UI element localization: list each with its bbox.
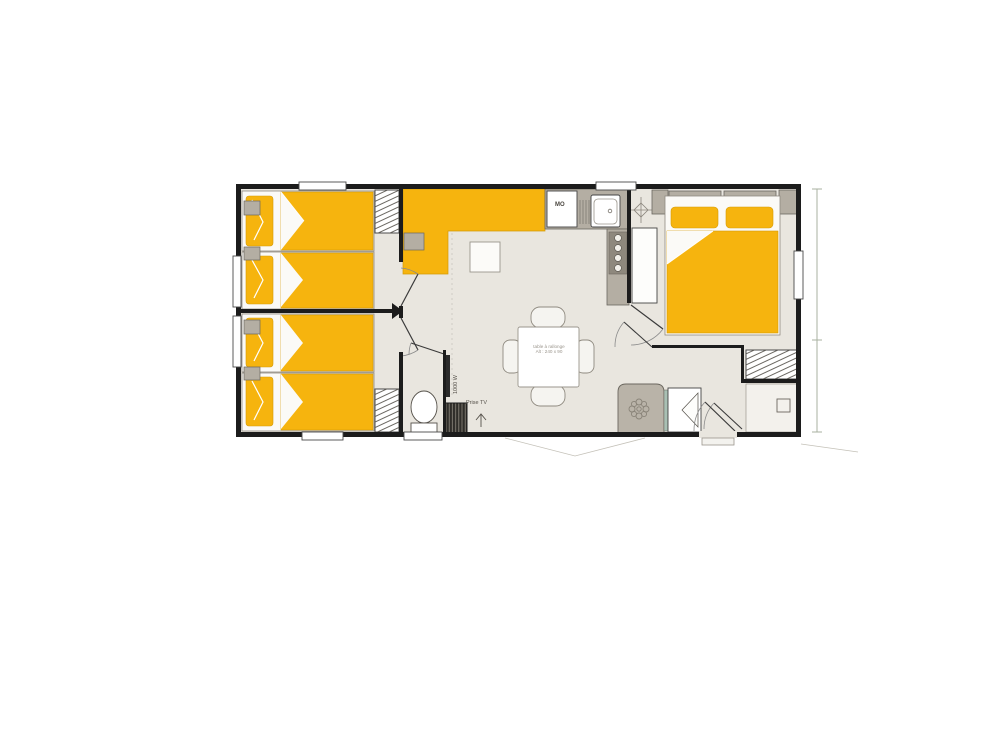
nightstand [244,367,260,380]
dimension-line [812,189,822,432]
wc [411,391,437,433]
microwave-label: MO [555,202,565,209]
entry-threshold [702,438,734,445]
chair [531,307,565,328]
interior-wall [741,345,744,383]
interior-wall [399,352,403,432]
interior-wall [241,309,399,313]
wardrobe [375,389,399,432]
tv-shelf [445,403,467,433]
shower-room [746,384,798,432]
dimension-line [801,444,858,452]
coffee-table [470,242,500,272]
entry-opening [699,431,737,438]
interior-wall [652,345,743,348]
bathroom [618,384,701,433]
dining-table [518,327,579,387]
dining-table-label: table à rallonge Alt : 240 x 90 [518,344,580,355]
tv-socket-label: Prise TV [466,400,487,406]
side-table [404,233,424,250]
pillow [726,207,773,228]
burner-icon [615,265,622,272]
nightstand [244,247,260,260]
window [233,256,241,307]
floor-plan [0,0,1000,750]
wardrobe [746,350,798,379]
burner-icon [615,235,622,242]
window [302,432,343,440]
interior-wall [399,189,403,262]
single-bed [242,191,374,251]
single-bed [242,252,374,309]
burner-icon [615,245,622,252]
burner-icon [615,255,622,262]
outer-wall-left [236,184,241,437]
single-bed [242,314,374,372]
dining-table-label-line2: Alt : 240 x 90 [518,349,580,354]
nightstand [244,320,260,334]
window [794,251,803,299]
terrace-mark [505,438,645,456]
floor-plan-page: MO 1000 W Prise TV table à rallonge Alt … [0,0,1000,750]
window [404,432,442,440]
radiator-power-label: 1000 W [453,375,459,394]
toilet-tank [411,423,437,433]
interior-wall [443,350,446,432]
window [299,182,346,190]
window [233,316,241,367]
toilet [411,391,437,423]
nightstand [244,201,260,215]
dresser [632,228,657,303]
microwave-shelf [547,191,577,227]
interior-wall [627,189,631,303]
chair [531,385,565,406]
water-heater [618,384,664,433]
outer-wall-right [796,184,801,437]
interior-wall [741,379,801,383]
towel-rail [664,390,668,431]
sink [591,195,620,227]
pillow [671,207,718,228]
window [596,182,636,190]
washbasin [668,388,701,432]
stove [609,232,627,274]
double-bed [665,196,780,335]
wardrobe [375,190,399,233]
single-bed [242,373,374,431]
